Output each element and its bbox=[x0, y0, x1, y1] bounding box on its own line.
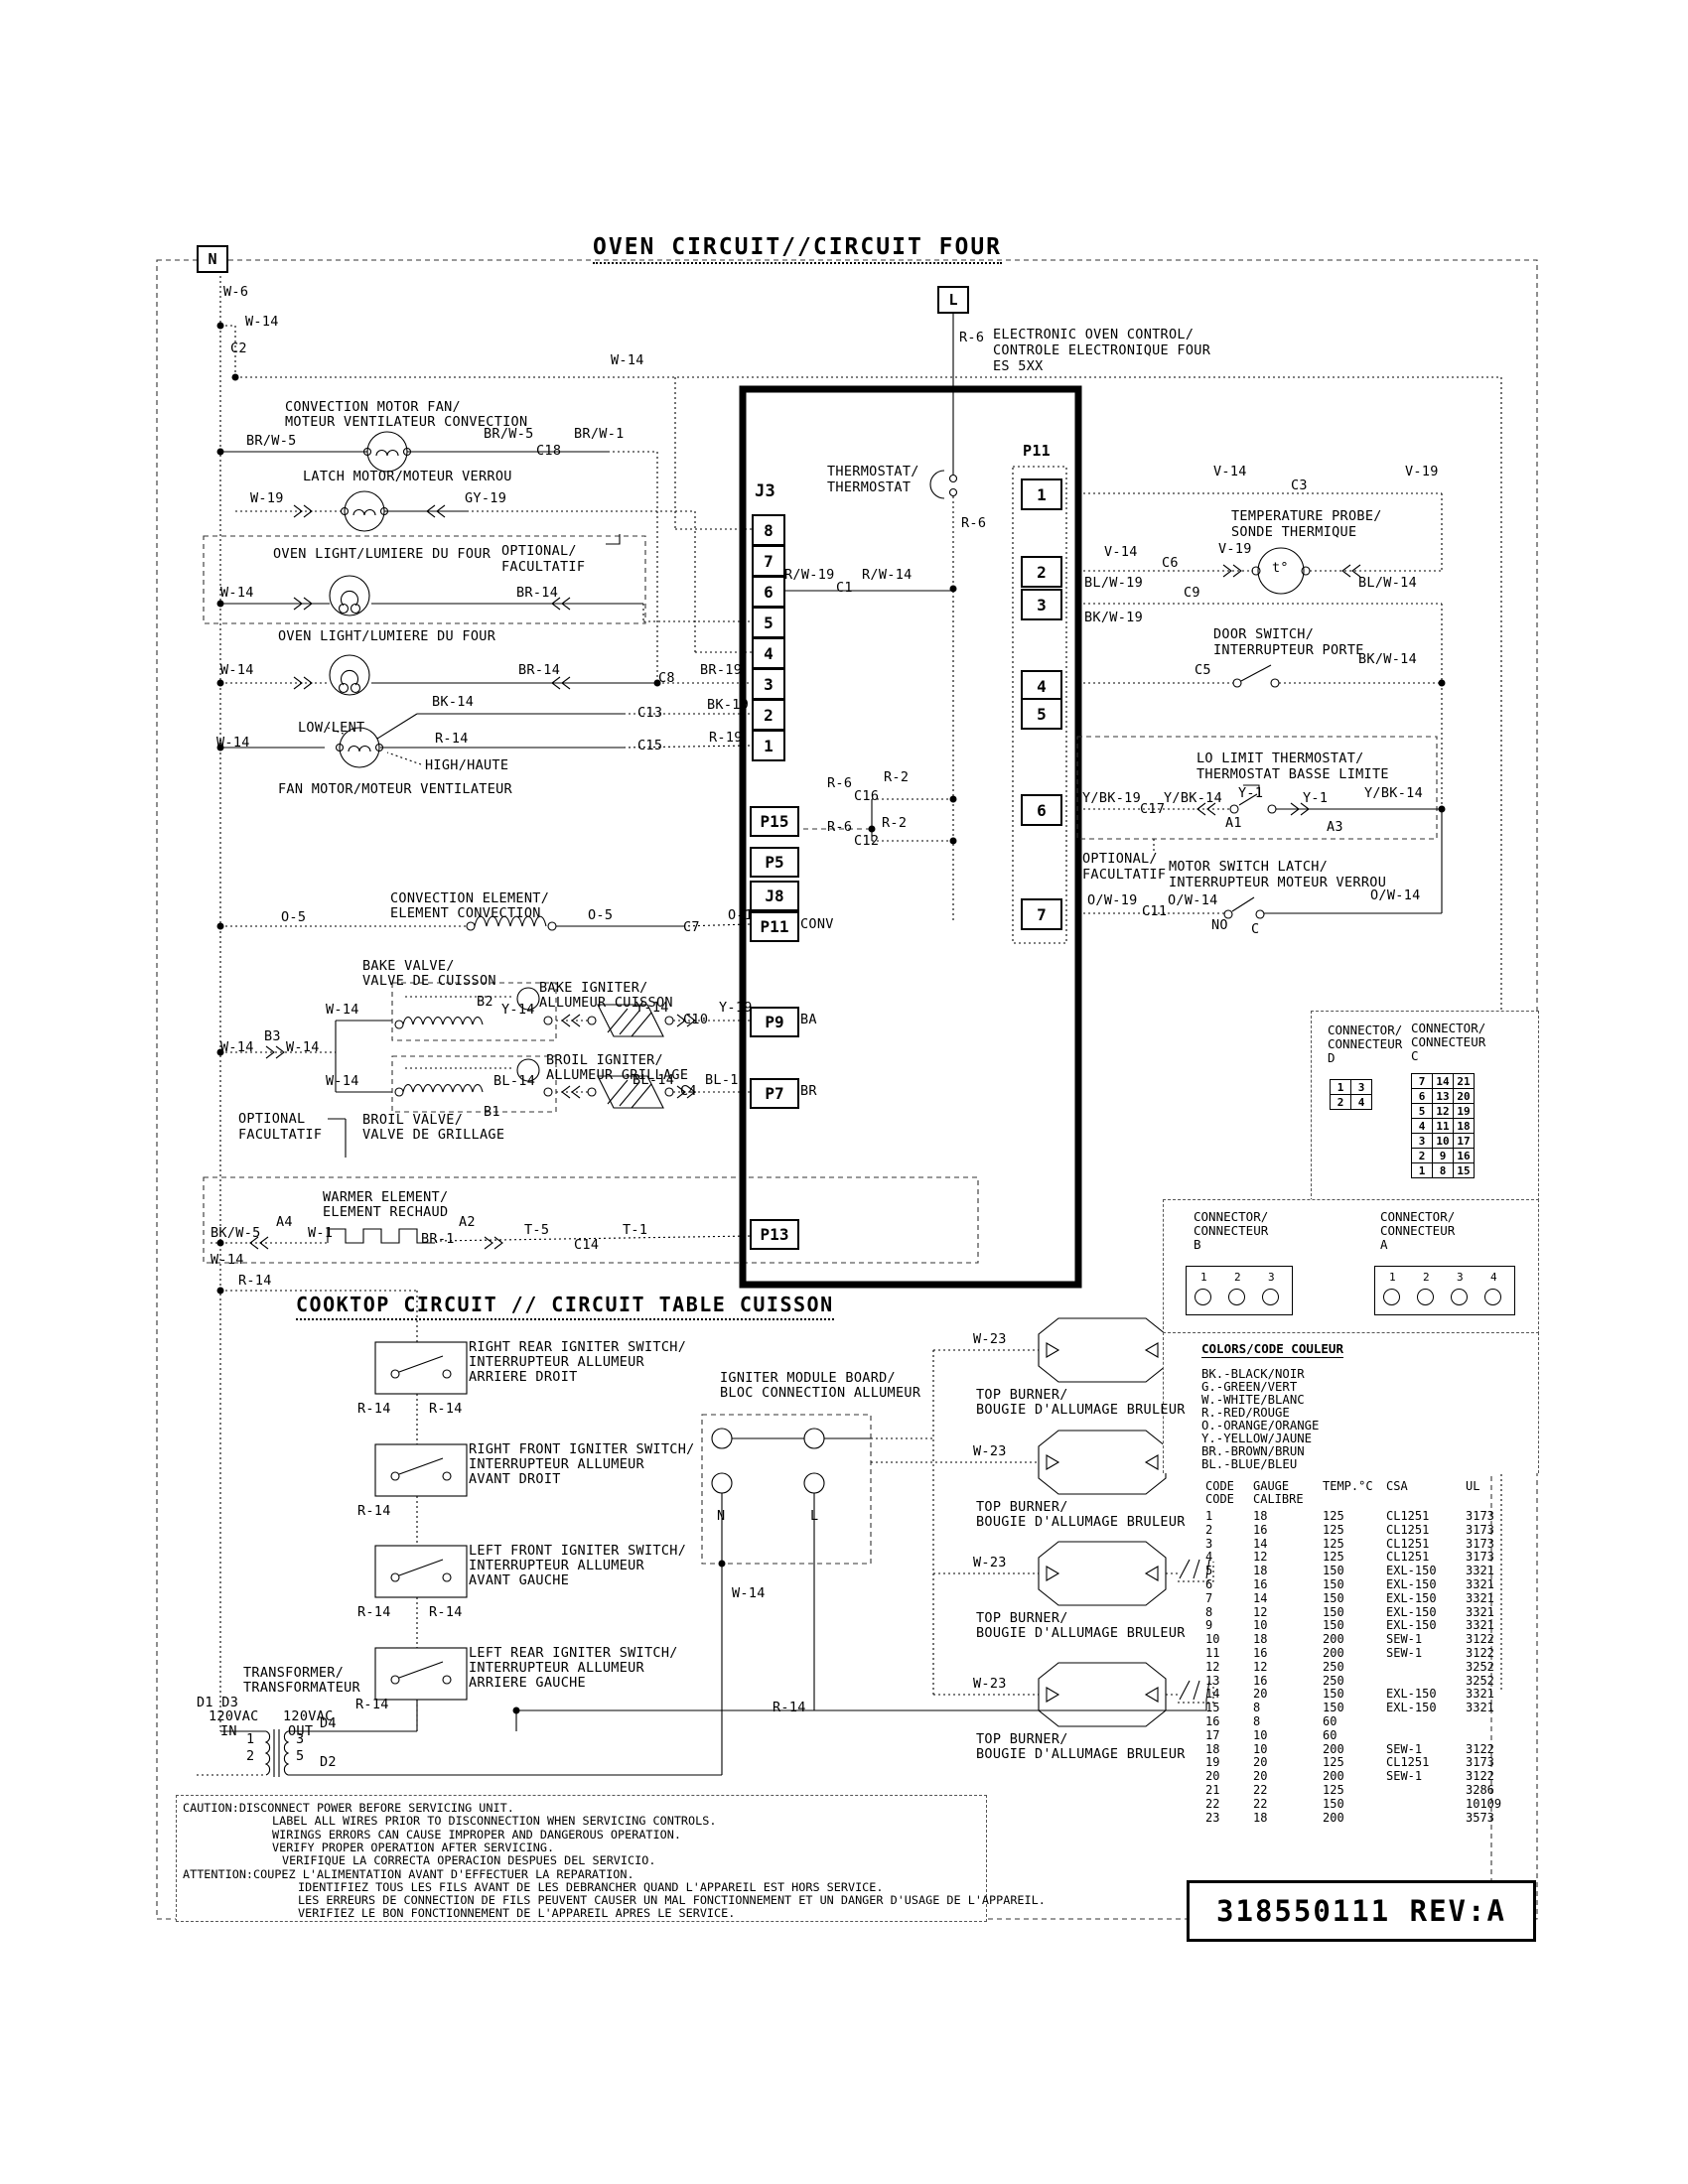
colors-legend-title: COLORS/CODE COULEUR bbox=[1201, 1341, 1343, 1358]
connector-pin-cell: 14 bbox=[1432, 1073, 1454, 1089]
component-label: CONTROLE ELECTRONIQUE FOUR bbox=[993, 343, 1210, 359]
connector-pin-cell: 15 bbox=[1453, 1162, 1475, 1178]
wire-table-cell: 125 bbox=[1323, 1523, 1344, 1537]
wire-table-cell: SEW-1 bbox=[1386, 1742, 1422, 1756]
wire-label: t° bbox=[1272, 561, 1289, 577]
connector-pin-cell: 4 bbox=[1350, 1094, 1372, 1110]
wire-label: BR-1 bbox=[421, 1232, 455, 1248]
wire-table-cell: 19 bbox=[1205, 1755, 1219, 1769]
connector-pin-number: 2 bbox=[1234, 1271, 1241, 1284]
wire-label: W-1 bbox=[308, 1226, 333, 1242]
wire-table-cell: SEW-1 bbox=[1386, 1632, 1422, 1646]
j3-pin-5: 5 bbox=[752, 607, 785, 638]
schematic-page: OVEN CIRCUIT//CIRCUIT FOUR COOKTOP CIRCU… bbox=[0, 0, 1688, 2184]
wire-table-cell: 200 bbox=[1323, 1742, 1344, 1756]
wire-table-cell: 9 bbox=[1205, 1618, 1212, 1632]
board-port-suffix: BR bbox=[800, 1084, 817, 1100]
wire-label: Y-1 bbox=[1238, 786, 1263, 802]
wire-label: C11 bbox=[1142, 904, 1167, 920]
connector-pin-cell: 11 bbox=[1432, 1118, 1454, 1134]
component-label: BOUGIE D'ALLUMAGE BRULEUR bbox=[976, 1747, 1186, 1763]
wire-table-cell: 200 bbox=[1323, 1769, 1344, 1783]
wire-label: BK/W-19 bbox=[1084, 611, 1143, 626]
wire-table-cell: 150 bbox=[1323, 1701, 1344, 1714]
wire-label: T-5 bbox=[524, 1223, 549, 1239]
wire-table-cell: 150 bbox=[1323, 1577, 1344, 1591]
wire-label: C9 bbox=[1184, 586, 1200, 602]
connector-pin-cell: 20 bbox=[1453, 1088, 1475, 1104]
wire-table-cell: 12 bbox=[1205, 1660, 1219, 1674]
wire-label: A2 bbox=[459, 1215, 476, 1231]
connector-pin-cell: 21 bbox=[1453, 1073, 1475, 1089]
wire-table-cell: 3321 bbox=[1466, 1605, 1494, 1619]
wire-table-cell: 8 bbox=[1253, 1701, 1260, 1714]
wire-label: O/W-19 bbox=[1087, 893, 1138, 909]
color-code-entry: BR.-BROWN/BRUN bbox=[1201, 1444, 1305, 1458]
wire-table-cell: 10 bbox=[1253, 1728, 1267, 1742]
wire-table-cell: 16 bbox=[1253, 1674, 1267, 1688]
wire-label: C10 bbox=[683, 1013, 708, 1028]
connector-pin-cell: 3 bbox=[1411, 1133, 1433, 1149]
wire-label: OPTIONAL/ bbox=[501, 544, 577, 560]
wire-label: BR-14 bbox=[518, 663, 560, 679]
connector-pin-number: 3 bbox=[1457, 1271, 1464, 1284]
j3-pin-1: 1 bbox=[752, 730, 785, 761]
wire-table-cell: 18 bbox=[1253, 1564, 1267, 1577]
p11-pin-7: 7 bbox=[1021, 898, 1062, 930]
wire-table-cell: 10 bbox=[1205, 1632, 1219, 1646]
board-port-p11: P11 bbox=[750, 911, 799, 942]
wire-table-cell: 10109 bbox=[1466, 1797, 1501, 1811]
connector-ba-panel: CONNECTOR/CONNECTEURB 123 CONNECTOR/CONN… bbox=[1163, 1199, 1539, 1334]
caution-line: CAUTION:DISCONNECT POWER BEFORE SERVICIN… bbox=[183, 1801, 514, 1815]
wire-label: R-14 bbox=[435, 732, 469, 748]
wire-table-header: UL bbox=[1466, 1479, 1479, 1493]
wire-label: C2 bbox=[230, 341, 247, 357]
wire-label: BL-14 bbox=[493, 1074, 535, 1090]
wire-table-cell: 150 bbox=[1323, 1797, 1344, 1811]
wire-table-cell: 3173 bbox=[1466, 1755, 1494, 1769]
wire-label: C16 bbox=[854, 789, 879, 805]
board-port-p13: P13 bbox=[750, 1219, 799, 1250]
wire-label: GY-19 bbox=[465, 491, 506, 507]
connector-pin-cell: 8 bbox=[1432, 1162, 1454, 1178]
wire-label: O/W-14 bbox=[1168, 893, 1218, 909]
connector-pin-cell: 2 bbox=[1411, 1148, 1433, 1163]
wire-table-cell: 20 bbox=[1253, 1769, 1267, 1783]
wire-label: C17 bbox=[1140, 802, 1165, 818]
wire-table-cell: 1 bbox=[1205, 1509, 1212, 1523]
connector-b-title: CONNECTOR/CONNECTEURB bbox=[1194, 1210, 1268, 1252]
line-terminal: L bbox=[937, 286, 969, 314]
wire-label: C7 bbox=[683, 920, 700, 936]
wire-label: O-5 bbox=[588, 908, 613, 924]
j3-pin-2: 2 bbox=[752, 699, 785, 731]
wire-label: Y/BK-14 bbox=[1164, 791, 1222, 807]
component-label: DOOR SWITCH/ bbox=[1213, 627, 1314, 643]
p11-pin-6: 6 bbox=[1021, 794, 1062, 826]
wire-table-cell: CL1251 bbox=[1386, 1509, 1429, 1523]
wire-label: W-14 bbox=[220, 1040, 254, 1056]
connector-pin-cell: 9 bbox=[1432, 1148, 1454, 1163]
wire-label: BR/W-1 bbox=[574, 427, 625, 443]
wire-table-cell: 22 bbox=[1205, 1797, 1219, 1811]
wire-label: C1 bbox=[836, 581, 853, 597]
wire-table-cell: 125 bbox=[1323, 1550, 1344, 1564]
component-label: BOUGIE D'ALLUMAGE BRULEUR bbox=[976, 1515, 1186, 1531]
wire-label: BR/W-5 bbox=[246, 434, 297, 450]
j3-pin-6: 6 bbox=[752, 576, 785, 608]
wire-table-cell: 12 bbox=[1253, 1605, 1267, 1619]
wire-table-cell: 20 bbox=[1205, 1769, 1219, 1783]
board-port-suffix: CONV bbox=[800, 917, 834, 933]
wire-label: BL/W-19 bbox=[1084, 576, 1143, 592]
component-label: ARRIERE GAUCHE bbox=[469, 1676, 586, 1692]
wire-table-header: CODE bbox=[1205, 1479, 1234, 1493]
caution-line: VERIFY PROPER OPERATION AFTER SERVICING. bbox=[272, 1841, 554, 1854]
component-label: TRANSFORMATEUR bbox=[243, 1681, 360, 1697]
cooktop-circuit-title: COOKTOP CIRCUIT // CIRCUIT TABLE CUISSON bbox=[296, 1293, 834, 1320]
board-port-j8: J8 bbox=[750, 881, 799, 911]
wire-table-header: CODE bbox=[1205, 1492, 1234, 1506]
wire-label: W-14 bbox=[611, 353, 644, 369]
component-label: ELEMENT CONVECTION bbox=[390, 906, 541, 922]
wire-table-cell: 3321 bbox=[1466, 1564, 1494, 1577]
connector-pin-cell: 5 bbox=[1411, 1103, 1433, 1119]
wire-table-cell: 8 bbox=[1253, 1714, 1260, 1728]
p11-pin-5: 5 bbox=[1021, 698, 1062, 730]
wire-table-cell: 3252 bbox=[1466, 1674, 1494, 1688]
connector-pin-cell: 10 bbox=[1432, 1133, 1454, 1149]
wire-label: O/W-14 bbox=[1370, 888, 1421, 904]
wire-label: O-5 bbox=[281, 910, 306, 926]
p11-pin-1: 1 bbox=[1021, 478, 1062, 510]
connector-pin-circle bbox=[1195, 1289, 1211, 1305]
wire-table-cell: 3286 bbox=[1466, 1783, 1494, 1797]
connector-a-title: CONNECTOR/CONNECTEURA bbox=[1380, 1210, 1455, 1252]
wire-label: Y/BK-14 bbox=[1364, 786, 1423, 802]
wire-table-cell: 3252 bbox=[1466, 1660, 1494, 1674]
component-label: ELECTRONIC OVEN CONTROL/ bbox=[993, 328, 1194, 343]
wire-label: R-2 bbox=[884, 770, 909, 786]
wire-table-cell: EXL-150 bbox=[1386, 1591, 1437, 1605]
wire-label: R-6 bbox=[961, 516, 986, 532]
wire-table-cell: 12 bbox=[1253, 1550, 1267, 1564]
wire-table-cell: 3122 bbox=[1466, 1632, 1494, 1646]
wire-label: Y-19 bbox=[719, 1001, 753, 1017]
wire-table-cell: 125 bbox=[1323, 1783, 1344, 1797]
p11-connector-label: P11 bbox=[1023, 443, 1051, 460]
color-code-entry: W.-WHITE/BLANC bbox=[1201, 1393, 1305, 1407]
wire-table-cell: CL1251 bbox=[1386, 1755, 1429, 1769]
board-port-suffix: BA bbox=[800, 1013, 817, 1028]
neutral-terminal: N bbox=[197, 245, 228, 273]
board-port-p9: P9 bbox=[750, 1007, 799, 1037]
wire-label: A1 bbox=[1225, 816, 1242, 832]
wire-label: C14 bbox=[574, 1238, 599, 1254]
wire-label: B3 bbox=[264, 1029, 281, 1045]
wire-table-cell: 10 bbox=[1253, 1742, 1267, 1756]
component-label: BOUGIE D'ALLUMAGE BRULEUR bbox=[976, 1403, 1186, 1419]
wire-table-cell: EXL-150 bbox=[1386, 1701, 1437, 1714]
wire-label: A3 bbox=[1327, 820, 1343, 836]
wire-label: W-6 bbox=[223, 285, 248, 301]
wire-label: R-6 bbox=[827, 776, 852, 792]
wire-table-cell: EXL-150 bbox=[1386, 1618, 1437, 1632]
wire-label: R-14 bbox=[429, 1605, 463, 1621]
thermostat-and-r6 bbox=[784, 314, 957, 923]
wire-table-cell: SEW-1 bbox=[1386, 1646, 1422, 1660]
wire-table-cell: 3173 bbox=[1466, 1523, 1494, 1537]
component-label: ELEMENT RECHAUD bbox=[323, 1205, 448, 1221]
connector-pin-circle bbox=[1417, 1289, 1434, 1305]
wire-table-cell: 21 bbox=[1205, 1783, 1219, 1797]
component-label: VALVE DE GRILLAGE bbox=[362, 1128, 504, 1144]
connector-pin-cell: 17 bbox=[1453, 1133, 1475, 1149]
wire-table-cell: 3173 bbox=[1466, 1537, 1494, 1551]
wire-table-cell: 16 bbox=[1253, 1523, 1267, 1537]
connector-pin-cell: 4 bbox=[1411, 1118, 1433, 1134]
wire-table-cell: 14 bbox=[1253, 1537, 1267, 1551]
wire-table-cell: 250 bbox=[1323, 1660, 1344, 1674]
connector-pin-cell: 1 bbox=[1330, 1079, 1351, 1095]
wire-label: W-23 bbox=[973, 1556, 1007, 1571]
wire-label: BL-19 bbox=[705, 1073, 747, 1089]
wire-label: D4 bbox=[320, 1716, 337, 1732]
connector-pin-cell: 16 bbox=[1453, 1148, 1475, 1163]
p11-pin-3: 3 bbox=[1021, 589, 1062, 620]
j3-connector-label: J3 bbox=[755, 482, 775, 502]
wire-label: FACULTATIF bbox=[501, 560, 585, 576]
wire-label: R-14 bbox=[355, 1698, 389, 1713]
wire-label: W-14 bbox=[286, 1040, 320, 1056]
wire-table-cell: 23 bbox=[1205, 1811, 1219, 1825]
wire-label: R-14 bbox=[357, 1402, 391, 1418]
wire-label: R-14 bbox=[357, 1504, 391, 1520]
wire-label: BL-14 bbox=[633, 1073, 674, 1089]
wire-label: FACULTATIF bbox=[238, 1128, 322, 1144]
wire-table-cell: 18 bbox=[1253, 1811, 1267, 1825]
wire-label: C18 bbox=[536, 444, 561, 460]
component-label: FAN MOTOR/MOTEUR VENTILATEUR bbox=[278, 782, 512, 798]
component-label: LATCH MOTOR/MOTEUR VERROU bbox=[303, 470, 512, 485]
wire-table-cell: 16 bbox=[1253, 1646, 1267, 1660]
wire-label: R-14 bbox=[357, 1605, 391, 1621]
connector-pin-circle bbox=[1228, 1289, 1245, 1305]
wire-label: OPTIONAL/ bbox=[1082, 852, 1158, 868]
p11-pin-2: 2 bbox=[1021, 556, 1062, 588]
wire-label: BR-19 bbox=[700, 663, 742, 679]
component-label: AVANT DROIT bbox=[469, 1472, 561, 1488]
wire-label: BR-14 bbox=[516, 586, 558, 602]
wire-table-cell: CL1251 bbox=[1386, 1523, 1429, 1537]
wire-label: IN bbox=[220, 1724, 237, 1740]
wire-table-cell: 15 bbox=[1205, 1701, 1219, 1714]
color-code-entry: BK.-BLACK/NOIR bbox=[1201, 1367, 1305, 1381]
wire-table-cell: 18 bbox=[1253, 1509, 1267, 1523]
wire-label: LOW/LENT bbox=[298, 721, 364, 737]
connector-dc-panel: CONNECTOR/CONNECTEURD 1324 CONNECTOR/CON… bbox=[1311, 1011, 1539, 1201]
wire-table-header: GAUGE bbox=[1253, 1479, 1289, 1493]
color-code-entry: R.-RED/ROUGE bbox=[1201, 1406, 1290, 1420]
caution-panel: CAUTION:DISCONNECT POWER BEFORE SERVICIN… bbox=[176, 1795, 987, 1922]
wire-label: A4 bbox=[276, 1215, 293, 1231]
wire-table-cell: 3573 bbox=[1466, 1811, 1494, 1825]
wire-table-cell: 3173 bbox=[1466, 1550, 1494, 1564]
component-label: OVEN LIGHT/LUMIERE DU FOUR bbox=[278, 629, 495, 645]
wire-table-cell: 7 bbox=[1205, 1591, 1212, 1605]
connector-pin-cell: 2 bbox=[1330, 1094, 1351, 1110]
wire-table-cell: 16 bbox=[1205, 1714, 1219, 1728]
wire-table-cell: 3321 bbox=[1466, 1618, 1494, 1632]
wire-label: R-14 bbox=[429, 1402, 463, 1418]
color-code-entry: BL.-BLUE/BLEU bbox=[1201, 1457, 1297, 1471]
wire-label: FACULTATIF bbox=[1082, 868, 1166, 884]
connector-pin-cell: 3 bbox=[1350, 1079, 1372, 1095]
component-label: ARRIERE DROIT bbox=[469, 1370, 578, 1386]
wire-label: R-14 bbox=[238, 1274, 272, 1290]
wire-table-cell: 60 bbox=[1323, 1714, 1336, 1728]
wire-table-cell: 3321 bbox=[1466, 1701, 1494, 1714]
wire-table-cell: CL1251 bbox=[1386, 1550, 1429, 1564]
wire-table-cell: 150 bbox=[1323, 1591, 1344, 1605]
wire-table-cell: 150 bbox=[1323, 1564, 1344, 1577]
connector-pin-number: 1 bbox=[1200, 1271, 1207, 1284]
wire-table-cell: 10 bbox=[1253, 1618, 1267, 1632]
wire-label: W-19 bbox=[250, 491, 284, 507]
caution-line: ATTENTION:COUPEZ L'ALIMENTATION AVANT D'… bbox=[183, 1867, 634, 1881]
wire-label: BK/W-14 bbox=[1358, 652, 1417, 668]
wire-table-cell: 250 bbox=[1323, 1674, 1344, 1688]
connector-pin-cell: 19 bbox=[1453, 1103, 1475, 1119]
wire-label: C5 bbox=[1195, 663, 1211, 679]
connector-c-title: CONNECTOR/CONNECTEURC bbox=[1411, 1022, 1485, 1063]
component-label: LO LIMIT THERMOSTAT/ bbox=[1196, 751, 1364, 767]
wire-label: HIGH/HAUTE bbox=[425, 758, 508, 774]
wire-table-cell: 3321 bbox=[1466, 1591, 1494, 1605]
caution-line: IDENTIFIEZ TOUS LES FILS AVANT DE LES DE… bbox=[298, 1880, 884, 1894]
wire-table-cell: 150 bbox=[1323, 1605, 1344, 1619]
wire-table-cell: 3 bbox=[1205, 1537, 1212, 1551]
caution-line: LES ERREURS DE CONNECTION DE FILS PEUVEN… bbox=[298, 1893, 1046, 1907]
wire-table-cell: CL1251 bbox=[1386, 1537, 1429, 1551]
caution-line: VERIFIEZ LE BON FONCTIONNEMENT DE L'APPA… bbox=[298, 1906, 735, 1920]
wire-table-cell: SEW-1 bbox=[1386, 1769, 1422, 1783]
wire-table-cell: 22 bbox=[1253, 1783, 1267, 1797]
color-code-entry: G.-GREEN/VERT bbox=[1201, 1380, 1297, 1394]
connector-pin-circle bbox=[1262, 1289, 1279, 1305]
wire-table-cell: 4 bbox=[1205, 1550, 1212, 1564]
connector-pin-cell: 18 bbox=[1453, 1118, 1475, 1134]
connector-pin-cell: 6 bbox=[1411, 1088, 1433, 1104]
wire-label: W-14 bbox=[326, 1003, 359, 1019]
wire-label: W-14 bbox=[326, 1074, 359, 1090]
component-label: INTERRUPTEUR MOTEUR VERROU bbox=[1169, 876, 1386, 891]
j3-pin-8: 8 bbox=[752, 514, 785, 546]
wire-label: W-23 bbox=[973, 1444, 1007, 1460]
connector-pin-cell: 13 bbox=[1432, 1088, 1454, 1104]
wire-label: L bbox=[810, 1509, 818, 1525]
board-port-p15: P15 bbox=[750, 806, 799, 837]
wire-table-cell: 200 bbox=[1323, 1632, 1344, 1646]
connector-pin-number: 4 bbox=[1490, 1271, 1497, 1284]
wire-table-cell: 11 bbox=[1205, 1646, 1219, 1660]
wire-label: W-14 bbox=[732, 1586, 766, 1602]
component-label: THERMOSTAT/ bbox=[827, 465, 919, 480]
wire-table-cell: EXL-150 bbox=[1386, 1577, 1437, 1591]
wire-table-cell: 3122 bbox=[1466, 1742, 1494, 1756]
wire-label: V-19 bbox=[1218, 542, 1252, 558]
component-label: TEMPERATURE PROBE/ bbox=[1231, 509, 1382, 525]
connector-pin-cell: 7 bbox=[1411, 1073, 1433, 1089]
wire-table-cell: EXL-150 bbox=[1386, 1564, 1437, 1577]
wire-table-cell: 14 bbox=[1205, 1687, 1219, 1701]
wire-label: W-14 bbox=[245, 315, 279, 331]
wire-label: 2 bbox=[246, 1749, 254, 1765]
wire-label: R-6 bbox=[959, 331, 984, 346]
component-label: SONDE THERMIQUE bbox=[1231, 525, 1356, 541]
wire-label: R-2 bbox=[882, 816, 907, 832]
wire-label: 1 bbox=[246, 1732, 254, 1748]
board-port-p5: P5 bbox=[750, 847, 799, 878]
wire-label: C15 bbox=[637, 739, 662, 754]
wire-table-cell: 3122 bbox=[1466, 1646, 1494, 1660]
wire-table-cell: 5 bbox=[1205, 1564, 1212, 1577]
wire-label: R-14 bbox=[773, 1701, 806, 1716]
j3-pin-4: 4 bbox=[752, 637, 785, 669]
wire-label: Y-14 bbox=[635, 1001, 669, 1017]
wire-label: BL/W-14 bbox=[1358, 576, 1417, 592]
wire-label: W-14 bbox=[211, 1253, 244, 1269]
wire-table-cell: 3122 bbox=[1466, 1769, 1494, 1783]
caution-line: LABEL ALL WIRES PRIOR TO DISCONNECTION W… bbox=[272, 1814, 716, 1828]
wire-label: BK-14 bbox=[432, 695, 474, 711]
wire-table-cell: 18 bbox=[1205, 1742, 1219, 1756]
component-label: MOTOR SWITCH LATCH/ bbox=[1169, 860, 1328, 876]
wire-label: W-14 bbox=[220, 586, 254, 602]
wire-label: C12 bbox=[854, 834, 879, 850]
component-label: THERMOSTAT BASSE LIMITE bbox=[1196, 767, 1389, 783]
connector-pin-cell: 12 bbox=[1432, 1103, 1454, 1119]
wire-table-cell: 8 bbox=[1205, 1605, 1212, 1619]
wire-label: T-1 bbox=[623, 1223, 647, 1239]
connector-pin-circle bbox=[1451, 1289, 1468, 1305]
wire-table-cell: 150 bbox=[1323, 1618, 1344, 1632]
wire-label: N bbox=[717, 1509, 725, 1525]
wire-label: C8 bbox=[658, 671, 675, 687]
wire-table-cell: 125 bbox=[1323, 1755, 1344, 1769]
wire-label: 3 bbox=[296, 1732, 304, 1748]
colors-legend-panel: COLORS/CODE COULEUR BK.-BLACK/NOIRG.-GRE… bbox=[1163, 1332, 1539, 1473]
component-label: INTERRUPTEUR PORTE bbox=[1213, 643, 1364, 659]
component-label: BOUGIE D'ALLUMAGE BRULEUR bbox=[976, 1626, 1186, 1642]
component-label: ES 5XX bbox=[993, 359, 1044, 375]
wire-label: W-23 bbox=[973, 1677, 1007, 1693]
wire-table-cell: 16 bbox=[1253, 1577, 1267, 1591]
wire-label: R-19 bbox=[709, 731, 743, 747]
wire-label: C3 bbox=[1291, 478, 1308, 494]
wire-table-cell: EXL-150 bbox=[1386, 1687, 1437, 1701]
component-label: THERMOSTAT bbox=[827, 480, 911, 496]
wire-table-cell: 3173 bbox=[1466, 1509, 1494, 1523]
wire-label: C6 bbox=[1162, 556, 1179, 572]
wire-table-header: TEMP.°C bbox=[1323, 1479, 1373, 1493]
wire-label: V-19 bbox=[1405, 465, 1439, 480]
board-port-p7: P7 bbox=[750, 1078, 799, 1109]
wire-label: W-14 bbox=[220, 663, 254, 679]
color-code-entry: Y.-YELLOW/JAUNE bbox=[1201, 1432, 1312, 1445]
wire-table-cell: 17 bbox=[1205, 1728, 1219, 1742]
